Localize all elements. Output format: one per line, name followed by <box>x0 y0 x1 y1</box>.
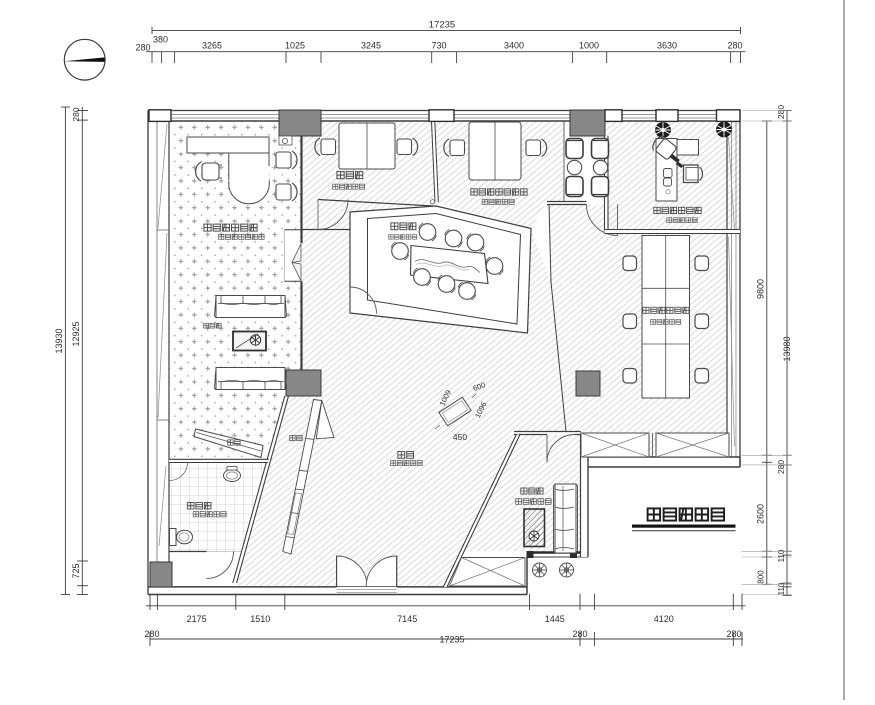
svg-text:280: 280 <box>726 629 741 639</box>
svg-text:3265: 3265 <box>202 41 222 51</box>
svg-text:280: 280 <box>144 629 159 639</box>
svg-text:1025: 1025 <box>285 41 305 51</box>
svg-text:800: 800 <box>757 570 766 584</box>
svg-text:1445: 1445 <box>545 614 565 624</box>
svg-text:2175: 2175 <box>187 614 207 624</box>
svg-text:450: 450 <box>453 432 467 442</box>
svg-text:280: 280 <box>776 460 786 474</box>
svg-text:13930: 13930 <box>54 328 64 353</box>
svg-text:7145: 7145 <box>397 614 417 624</box>
svg-text:2600: 2600 <box>756 504 766 524</box>
svg-text:3400: 3400 <box>504 41 524 51</box>
svg-text:17235: 17235 <box>429 20 455 31</box>
svg-text:280: 280 <box>71 107 81 121</box>
svg-text:3245: 3245 <box>361 41 381 51</box>
svg-text:280: 280 <box>727 41 742 51</box>
svg-text:280: 280 <box>135 43 150 53</box>
svg-text:4120: 4120 <box>654 614 674 624</box>
svg-text:1000: 1000 <box>579 41 599 51</box>
svg-text:1510: 1510 <box>250 614 270 624</box>
svg-text:725: 725 <box>71 563 81 578</box>
svg-text:13980: 13980 <box>782 336 792 361</box>
svg-text:3630: 3630 <box>657 41 677 51</box>
svg-text:9800: 9800 <box>756 279 766 299</box>
svg-text:280: 280 <box>776 105 786 119</box>
svg-text:380: 380 <box>153 35 168 45</box>
svg-text:730: 730 <box>431 41 446 51</box>
svg-text:12925: 12925 <box>71 321 81 346</box>
svg-text:17235: 17235 <box>439 635 464 645</box>
svg-text:280: 280 <box>572 629 587 639</box>
